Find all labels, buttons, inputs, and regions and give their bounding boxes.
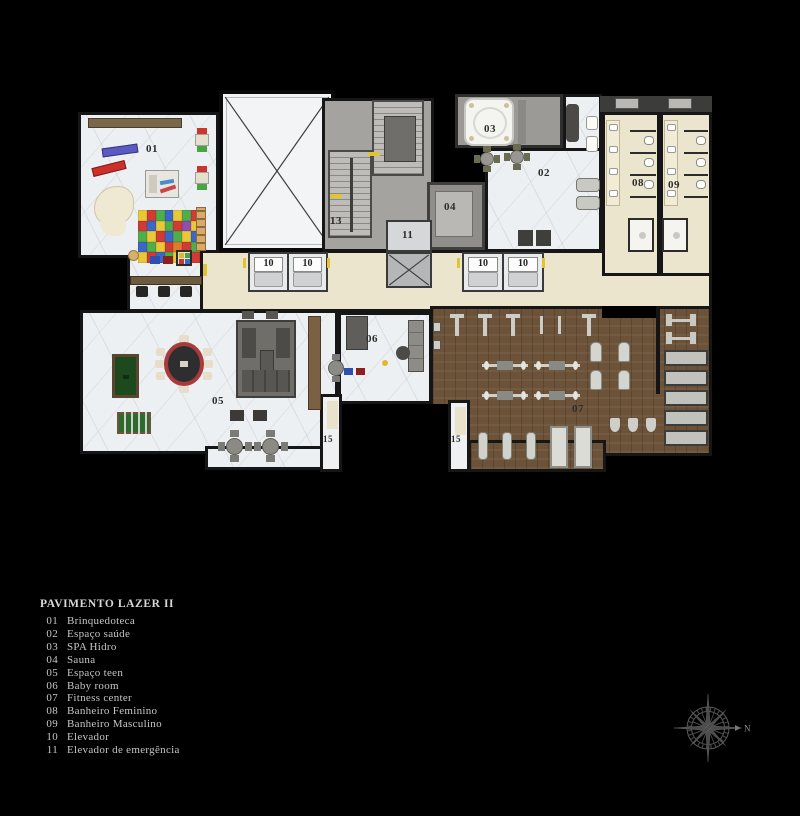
kettlebell (610, 418, 620, 432)
legend-item-label: Banheiro Feminino (67, 705, 157, 717)
toy-detail (179, 253, 184, 258)
game-table-oval (160, 340, 208, 388)
legend-item: 06Baby room (40, 680, 180, 693)
legend-item: 09Banheiro Masculino (40, 718, 180, 731)
rug-square (165, 221, 174, 232)
massage-lounger (576, 196, 600, 210)
lounger (566, 104, 579, 142)
tub-jet (469, 136, 474, 141)
teddy-toy (128, 250, 139, 261)
legend-item-label: Espaço teen (67, 667, 123, 679)
chair (266, 311, 278, 319)
legend-item-number: 02 (40, 628, 58, 641)
room-number-09: 09 (668, 180, 680, 191)
chair (179, 385, 189, 393)
chair (513, 164, 521, 170)
chair (230, 430, 239, 437)
plate (536, 361, 541, 370)
rug-square (138, 242, 147, 253)
legend-item: 05Espaço teen (40, 667, 180, 680)
elevator-car (508, 272, 538, 287)
legend: PAVIMENTO LAZER II 01Brinquedoteca 02Esp… (40, 598, 180, 757)
exercise-bike (618, 370, 630, 390)
chair (332, 376, 340, 382)
kids-table (192, 166, 212, 190)
room-number-04: 04 (444, 202, 456, 213)
legend-item-label: SPA Hidro (67, 641, 117, 653)
toilet (644, 180, 654, 189)
dumbbell-end (690, 332, 696, 344)
toy-block (150, 256, 160, 264)
chair (230, 455, 239, 462)
ac-unit (668, 98, 692, 109)
rug-square (156, 210, 165, 221)
tub-jet (504, 136, 509, 141)
gym-bench-row (446, 314, 616, 340)
elevator-10: 10 (287, 252, 328, 292)
toy-block (163, 256, 173, 264)
room-number-15: 15 (323, 434, 333, 445)
spin-bike (478, 432, 488, 460)
speaker (276, 328, 290, 358)
exercise-mat (664, 430, 708, 446)
toy-detail (149, 175, 157, 193)
room-number-07: 07 (572, 404, 584, 415)
rug-square (165, 242, 174, 253)
exercise-mat (664, 370, 708, 386)
toy-ball (382, 360, 388, 366)
table-top (195, 172, 209, 184)
stair-door-marker (368, 152, 380, 156)
plate (521, 361, 526, 370)
spin-bike (502, 432, 512, 460)
toy-detail (160, 185, 176, 194)
baby-cabinet (408, 320, 424, 372)
door-marker (243, 258, 246, 268)
plate (573, 361, 578, 370)
door-marker (327, 258, 330, 268)
emergency-elevator-shaft (386, 252, 432, 288)
table-center (180, 361, 188, 367)
chair (254, 442, 261, 451)
gym-bench (587, 318, 591, 336)
rug-square (191, 252, 200, 263)
tub-jet (469, 103, 474, 108)
legend-item: 10Elevador (40, 731, 180, 744)
play-structure (145, 170, 179, 198)
table-top (328, 360, 344, 376)
legend-item-label: Espaço saúde (67, 628, 130, 640)
barbell-bench (549, 361, 565, 370)
exercise-bike (590, 370, 602, 390)
sink (667, 190, 676, 197)
rug-square (147, 210, 156, 221)
gym-bar (558, 316, 561, 334)
rug-square (156, 242, 165, 253)
rug-square (138, 252, 147, 263)
foosball-rod (138, 412, 140, 434)
chair (242, 311, 254, 319)
gym-bench (455, 318, 459, 336)
toy-shelf (88, 118, 182, 128)
dumbbell (666, 314, 696, 326)
compass-rose: N (660, 680, 756, 776)
chair (218, 442, 225, 451)
legend-title: PAVIMENTO LAZER II (40, 598, 180, 610)
spa-step (518, 100, 526, 144)
toy-detail (179, 259, 184, 264)
shower-stall (662, 218, 688, 252)
chair (483, 166, 491, 172)
play-mat (100, 214, 126, 236)
spin-bike (526, 432, 536, 460)
legend-item-label: Baby room (67, 680, 119, 692)
elevator-10: 10 (248, 252, 289, 292)
room-04-sauna (427, 182, 485, 250)
legend-item-number: 04 (40, 654, 58, 667)
exercise-mat (664, 410, 708, 426)
rug-square (147, 242, 156, 253)
toy-block (344, 368, 353, 375)
room-number-01: 01 (146, 144, 158, 155)
chair (524, 153, 530, 161)
massage-lounger (576, 178, 600, 192)
chair (203, 348, 212, 356)
dumbbell-end (666, 332, 672, 344)
well-fill (455, 407, 466, 435)
foosball-rod (145, 412, 147, 434)
stair-rail (350, 158, 353, 232)
stall-partition (630, 130, 656, 132)
legend-item-number: 10 (40, 731, 58, 744)
legend-item-label: Fitness center (67, 692, 132, 704)
barbell-bench (549, 391, 565, 400)
barbell-bench (497, 361, 513, 370)
sink (609, 168, 618, 175)
plate (536, 391, 541, 400)
legend-item-label: Brinquedoteca (67, 615, 135, 627)
stall-partition (684, 196, 708, 198)
stair-door-marker (330, 194, 342, 198)
legend-item-label: Elevador (67, 731, 109, 743)
round-table-set (254, 430, 288, 462)
wc-fixture (586, 136, 598, 152)
pouf (230, 410, 244, 421)
legend-item: 07Fitness center (40, 692, 180, 705)
table-top (195, 134, 209, 146)
stall-partition (630, 152, 656, 154)
climbing-ladder-toy (196, 207, 206, 251)
shower-stall (628, 218, 654, 252)
toy-box (176, 250, 192, 266)
toy-detail (160, 179, 174, 185)
foosball-table (117, 412, 151, 434)
toilet (696, 136, 706, 145)
table-top (226, 438, 243, 455)
plate (521, 391, 526, 400)
legend-item-number: 08 (40, 705, 58, 718)
rug-square (156, 231, 165, 242)
sink (609, 190, 618, 197)
stall-partition (684, 174, 708, 176)
void-x-mark (223, 94, 331, 248)
room-number-11: 11 (402, 230, 413, 241)
toy-detail (185, 253, 190, 258)
room-number-03: 03 (484, 124, 496, 135)
well-fill (327, 401, 338, 429)
rug-square (173, 231, 182, 242)
cafe-table-set (504, 144, 530, 170)
legend-item: 02Espaço saúde (40, 628, 180, 641)
plate (484, 361, 489, 370)
legend-item: 08Banheiro Feminino (40, 705, 180, 718)
legend-item: 04Sauna (40, 654, 180, 667)
dumbbell-end (690, 314, 696, 326)
legend-item-number: 03 (40, 641, 58, 654)
dumbbell-bar (672, 319, 690, 322)
pouf (518, 230, 533, 246)
door-marker (542, 258, 545, 268)
legend-item-number: 07 (40, 692, 58, 705)
elevator-car (254, 272, 283, 287)
gym-bar (540, 316, 543, 334)
light-well-15-left (320, 394, 342, 472)
tub-jet (504, 103, 509, 108)
stair-core-block (384, 116, 416, 162)
table-top (480, 152, 494, 166)
sofa-row (242, 370, 290, 392)
legend-item-label: Elevador de emergência (67, 744, 180, 756)
stall-partition (684, 130, 708, 132)
roof-ledge (600, 96, 712, 112)
gym-bench (483, 318, 487, 336)
foosball-rod (131, 412, 133, 434)
elevator-label: 10 (254, 257, 283, 272)
wall-rack (433, 340, 441, 350)
gym-bench (511, 318, 515, 336)
round-table-set (218, 430, 252, 462)
rug-square (165, 231, 174, 242)
legend-item: 01Brinquedoteca (40, 615, 180, 628)
treadmill-mat (574, 426, 592, 468)
barbell-bench (497, 391, 513, 400)
compass-graphic: N (660, 680, 756, 776)
legend-item-label: Sauna (67, 654, 95, 666)
chair (332, 354, 340, 360)
baby-sofa (346, 316, 368, 350)
stool (158, 286, 170, 297)
legend-item-number: 11 (40, 744, 58, 757)
chair (197, 146, 207, 152)
rug-square (182, 210, 191, 221)
elevator-label: 10 (293, 257, 322, 272)
room-number-06: 06 (366, 334, 378, 345)
rug-square (138, 210, 147, 221)
chair (155, 360, 164, 368)
plate (484, 391, 489, 400)
foosball-rod (124, 412, 126, 434)
compass-north-label: N (744, 724, 751, 734)
elevator-label: 10 (468, 257, 498, 272)
kettlebell (628, 418, 638, 432)
fitness-notch (430, 404, 448, 472)
elevator-car (468, 272, 498, 287)
north-arrow-icon (735, 725, 741, 731)
legend-list: 01Brinquedoteca 02Espaço saúde 03SPA Hid… (40, 615, 180, 757)
rug-square (165, 210, 174, 221)
sauna-benches (435, 191, 473, 237)
dumbbell-end (666, 314, 672, 326)
exercise-bike (590, 342, 602, 362)
pool-table (112, 354, 139, 398)
rug-square (173, 210, 182, 221)
table-top (510, 150, 524, 164)
wood-feature-wall (308, 316, 321, 410)
rug-square (138, 221, 147, 232)
treadmill-mat (550, 426, 568, 468)
elevator-car (293, 272, 322, 287)
media-lounge-unit (236, 320, 296, 398)
chair (204, 360, 213, 368)
pool-detail (123, 375, 129, 379)
speaker (242, 328, 256, 358)
stairs-b (372, 100, 424, 176)
cafe-table-set (474, 146, 500, 172)
table-top (262, 438, 279, 455)
legend-item-number: 05 (40, 667, 58, 680)
toy-detail (185, 259, 190, 264)
rug-square (138, 231, 147, 242)
legend-item: 11Elevador de emergência (40, 744, 180, 757)
chair (266, 455, 275, 462)
center-table (260, 350, 274, 372)
sink (609, 124, 618, 131)
stool (136, 286, 148, 297)
wall-rack (433, 322, 441, 332)
chair (281, 442, 288, 451)
chair (245, 442, 252, 451)
stall-partition (630, 174, 656, 176)
exercise-bike (618, 342, 630, 362)
toilet (696, 158, 706, 167)
rug-square (147, 221, 156, 232)
shower-head (673, 232, 680, 239)
barbell-station (534, 386, 580, 404)
room-number-13: 13 (330, 216, 342, 227)
rug-square (156, 221, 165, 232)
legend-item-label: Banheiro Masculino (67, 718, 162, 730)
rug-square (182, 231, 191, 242)
ac-unit (615, 98, 639, 109)
sink (667, 124, 676, 131)
chair (197, 184, 207, 190)
barbell-station (482, 356, 528, 374)
round-chair (396, 346, 410, 360)
sink (667, 146, 676, 153)
legend-item-number: 09 (40, 718, 58, 731)
wc-fixture (586, 116, 598, 130)
elevator-10: 10 (462, 252, 504, 292)
wood-counter (130, 276, 202, 285)
void-skylight (219, 90, 335, 252)
elevator-label: 10 (508, 257, 538, 272)
toilet (644, 158, 654, 167)
sink (667, 168, 676, 175)
shaft-x-mark (388, 254, 430, 286)
chair (203, 372, 212, 380)
door-marker (457, 258, 460, 268)
rug-square (147, 231, 156, 242)
stall-partition (630, 196, 656, 198)
rug-square (173, 221, 182, 232)
shower-head (639, 232, 646, 239)
stool (180, 286, 192, 297)
toy-block (356, 368, 365, 375)
legend-item: 03SPA Hidro (40, 641, 180, 654)
dumbbell (666, 332, 696, 344)
pouf (536, 230, 551, 246)
chair (494, 155, 500, 163)
plate (573, 391, 578, 400)
chair (156, 348, 165, 356)
toilet (644, 136, 654, 145)
fitness-inner-wall (656, 306, 660, 394)
kids-table (192, 128, 212, 152)
kettlebell (646, 418, 656, 432)
chair (266, 430, 275, 437)
legend-item-number: 01 (40, 615, 58, 628)
barbell-station (482, 386, 528, 404)
room-number-05: 05 (212, 396, 224, 407)
barbell-station (534, 356, 580, 374)
room-number-02: 02 (538, 168, 550, 179)
legend-item-number: 06 (40, 680, 58, 693)
hot-tub (464, 98, 514, 146)
chair (156, 372, 165, 380)
elevator-10: 10 (502, 252, 544, 292)
exercise-mat (664, 390, 708, 406)
room-number-15: 15 (451, 434, 461, 445)
door-marker (203, 264, 207, 276)
exercise-mat (664, 350, 708, 366)
floorplan-page: { "legend": { "title": "PAVIMENTO LAZER … (0, 0, 800, 816)
room-number-08: 08 (632, 178, 644, 189)
toilet (696, 180, 706, 189)
pouf (253, 410, 267, 421)
rug-square (182, 221, 191, 232)
stall-partition (684, 152, 708, 154)
dumbbell-bar (672, 337, 690, 340)
sink (609, 146, 618, 153)
